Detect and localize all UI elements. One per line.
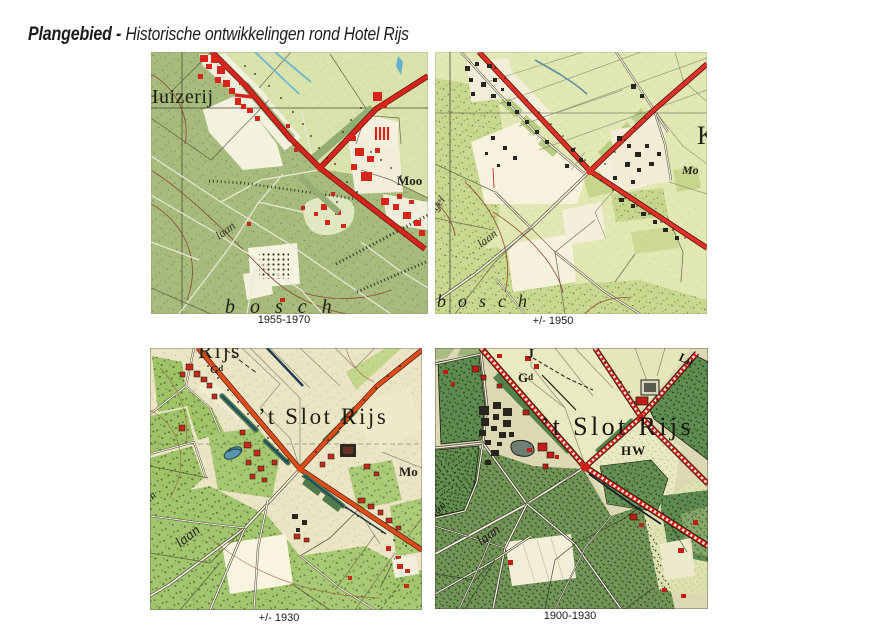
svg-text:J: J xyxy=(527,348,534,362)
svg-text:’t Slot Rijs: ’t Slot Rijs xyxy=(541,412,694,441)
svg-text:Huizerij: Huizerij xyxy=(151,86,214,108)
svg-text:’t Slot Rijs: ’t Slot Rijs xyxy=(258,404,388,429)
svg-text:Mo: Mo xyxy=(681,163,699,177)
svg-text:K: K xyxy=(697,121,707,150)
svg-text:HW: HW xyxy=(621,443,646,458)
svg-text:Mo: Mo xyxy=(399,464,418,479)
svg-text:bosch: bosch xyxy=(225,296,347,314)
svg-text:Moo: Moo xyxy=(397,173,422,188)
svg-text:Rijs: Rijs xyxy=(198,348,241,363)
svg-text:bosch: bosch xyxy=(437,291,539,311)
